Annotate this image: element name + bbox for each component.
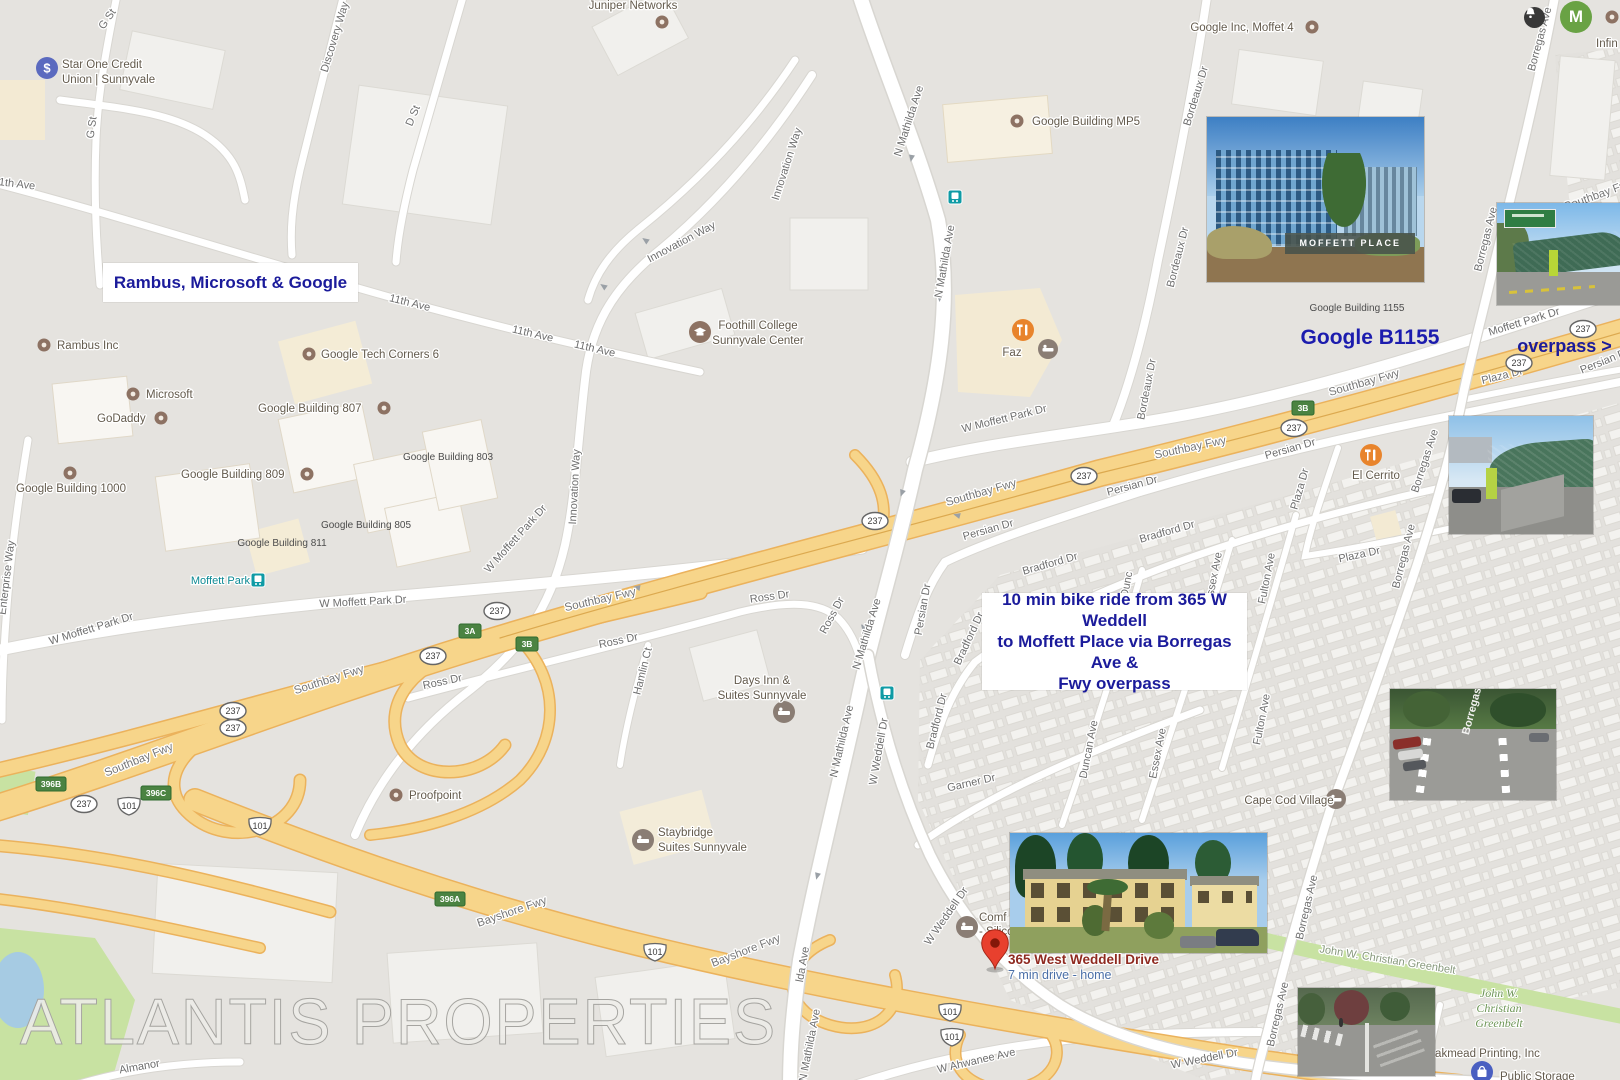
svg-text:101: 101 (647, 947, 662, 957)
svg-text:Foothill College: Foothill College (718, 320, 797, 332)
svg-text:Suites Sunnyvale: Suites Sunnyvale (718, 690, 807, 702)
pin-labels: 365 West Weddell Drive 7 min drive - hom… (1008, 952, 1159, 982)
svg-text:3A: 3A (465, 626, 476, 636)
svg-text:Christian: Christian (1476, 1001, 1521, 1015)
svg-text:3B: 3B (522, 639, 533, 649)
photo-borregas-street: Borregas (1390, 689, 1556, 800)
svg-text:$: $ (43, 61, 51, 76)
svg-text:Greenbelt: Greenbelt (1475, 1016, 1523, 1030)
svg-text:Comf: Comf (979, 912, 1007, 924)
svg-text:237: 237 (225, 706, 240, 716)
annotation-google-b1155: Google B1155 (1300, 326, 1440, 350)
svg-text:Proofpoint: Proofpoint (409, 790, 462, 802)
svg-text:Union | Sunnyvale: Union | Sunnyvale (62, 74, 155, 86)
svg-text:Microsoft: Microsoft (146, 389, 193, 401)
svg-text:GoDaddy: GoDaddy (97, 413, 146, 425)
svg-text:Staybridge: Staybridge (658, 827, 713, 839)
photo-intersection (1298, 988, 1435, 1076)
school-icon[interactable] (689, 321, 711, 343)
photo-apartment (1010, 833, 1267, 953)
svg-text:101: 101 (252, 821, 267, 831)
svg-text:Google Tech Corners 6: Google Tech Corners 6 (321, 349, 439, 361)
svg-text:396B: 396B (41, 779, 61, 789)
svg-text:El Cerrito: El Cerrito (1352, 470, 1400, 482)
svg-text:3B: 3B (1298, 403, 1309, 413)
annotation-overpass: overpass > (1512, 336, 1617, 357)
svg-text:237: 237 (225, 723, 240, 733)
svg-text:237: 237 (1511, 358, 1526, 368)
svg-text:Google Building 811: Google Building 811 (237, 538, 327, 549)
svg-text:396C: 396C (146, 788, 166, 798)
svg-text:237: 237 (1076, 471, 1091, 481)
svg-text:101: 101 (944, 1032, 959, 1042)
svg-text:Public Storage: Public Storage (1500, 1071, 1575, 1080)
svg-text:Juniper Networks: Juniper Networks (589, 0, 678, 12)
apps-grid-icon[interactable] (1482, 8, 1502, 28)
photo-overpass-borregas (1449, 416, 1593, 534)
annotation-rambus-box: Rambus, Microsoft & Google (103, 263, 358, 302)
svg-text:Google Building 803: Google Building 803 (403, 452, 494, 463)
svg-text:Moffett Park: Moffett Park (191, 575, 251, 587)
photo-moffett-place: MOFFETT PLACE (1207, 117, 1424, 282)
svg-text:Oakmead Printing, Inc: Oakmead Printing, Inc (1426, 1048, 1540, 1060)
svg-text:Google Inc, Moffet 4: Google Inc, Moffet 4 (1190, 22, 1294, 34)
photo-overpass-small (1497, 203, 1620, 305)
svg-text:Days Inn &: Days Inn & (734, 675, 791, 687)
svg-text:101: 101 (121, 801, 136, 811)
svg-text:Sunnyvale Center: Sunnyvale Center (712, 335, 804, 347)
svg-text:237: 237 (489, 606, 504, 616)
svg-text:396A: 396A (440, 894, 460, 904)
svg-text:237: 237 (76, 799, 91, 809)
svg-text:Star One Credit: Star One Credit (62, 59, 143, 71)
svg-text:Cape Cod Village: Cape Cod Village (1244, 795, 1333, 807)
svg-text:Google Building 807: Google Building 807 (258, 403, 362, 415)
svg-text:Google Building MP5: Google Building MP5 (1032, 116, 1140, 128)
svg-text:Suites Sunnyvale: Suites Sunnyvale (658, 842, 747, 854)
account-avatar[interactable]: M (1560, 1, 1592, 33)
svg-text:Google Building 1155: Google Building 1155 (1310, 303, 1405, 314)
watermark-text: ATLANTIS PROPERTIES (20, 985, 777, 1058)
bank-icon[interactable]: $ (36, 57, 58, 79)
annotation-bike-box: 10 min bike ride from 365 W Weddell to M… (982, 593, 1247, 690)
notifications-bell-icon[interactable] (1524, 7, 1545, 28)
moffett-place-sign: MOFFETT PLACE (1285, 233, 1415, 254)
svg-text:Rambus Inc: Rambus Inc (57, 340, 119, 352)
pin-title: 365 West Weddell Drive (1008, 952, 1159, 967)
svg-text:Google Building 1000: Google Building 1000 (16, 483, 126, 495)
svg-text:237: 237 (1575, 324, 1590, 334)
pin-subtitle: 7 min drive - home (1008, 968, 1159, 982)
svg-text:237: 237 (425, 651, 440, 661)
svg-text:John W.: John W. (1480, 986, 1518, 1000)
svg-text:Infin: Infin (1596, 38, 1618, 50)
svg-text:Google Building 805: Google Building 805 (321, 520, 412, 531)
svg-text:237: 237 (1286, 423, 1301, 433)
svg-text:101: 101 (942, 1007, 957, 1017)
svg-text:Faz: Faz (1002, 347, 1021, 359)
svg-text:Google Building 809: Google Building 809 (181, 469, 285, 481)
map-viewport[interactable]: ATLANTIS PROPERTIES G St G St Discovery … (0, 0, 1620, 1080)
svg-text:237: 237 (867, 516, 882, 526)
